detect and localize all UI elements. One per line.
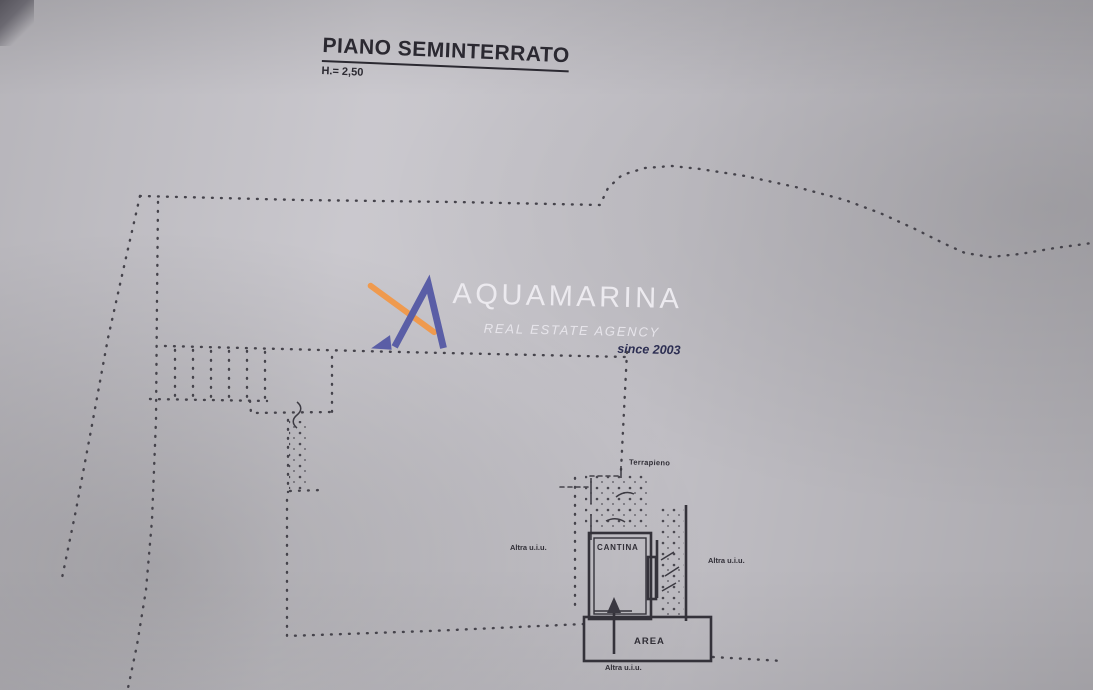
- floorplan-linework: [0, 0, 1093, 690]
- staircase-hatch: [175, 350, 265, 399]
- ramp-fill-hatch: [658, 506, 684, 616]
- upper-terrace-dotted-outline: [150, 346, 627, 413]
- parcel-boundary-dotted: [62, 166, 1092, 688]
- retaining-wall-ticks: [686, 505, 700, 621]
- label-adjacent-unit-left: Altra u.i.u.: [510, 543, 547, 552]
- label-adjacent-unit-right: Altra u.i.u.: [708, 556, 745, 565]
- label-adjacent-unit-bottom: Altra u.i.u.: [605, 663, 642, 672]
- entrance-arrow: [607, 597, 621, 654]
- lower-court-dotted-outline: [287, 352, 783, 661]
- scanned-floorplan-photo: PIANO SEMINTERRATO H.= 2,50 AQUAMARINA R…: [0, 0, 1093, 690]
- label-cantina: CANTINA: [597, 543, 639, 552]
- wall-hatch-strip: [289, 421, 307, 489]
- cantina-walls: [589, 528, 657, 619]
- label-terrapieno: Terrapieno: [629, 457, 670, 467]
- terrapieno-fill-hatch: [585, 472, 649, 530]
- label-area: AREA: [634, 636, 665, 647]
